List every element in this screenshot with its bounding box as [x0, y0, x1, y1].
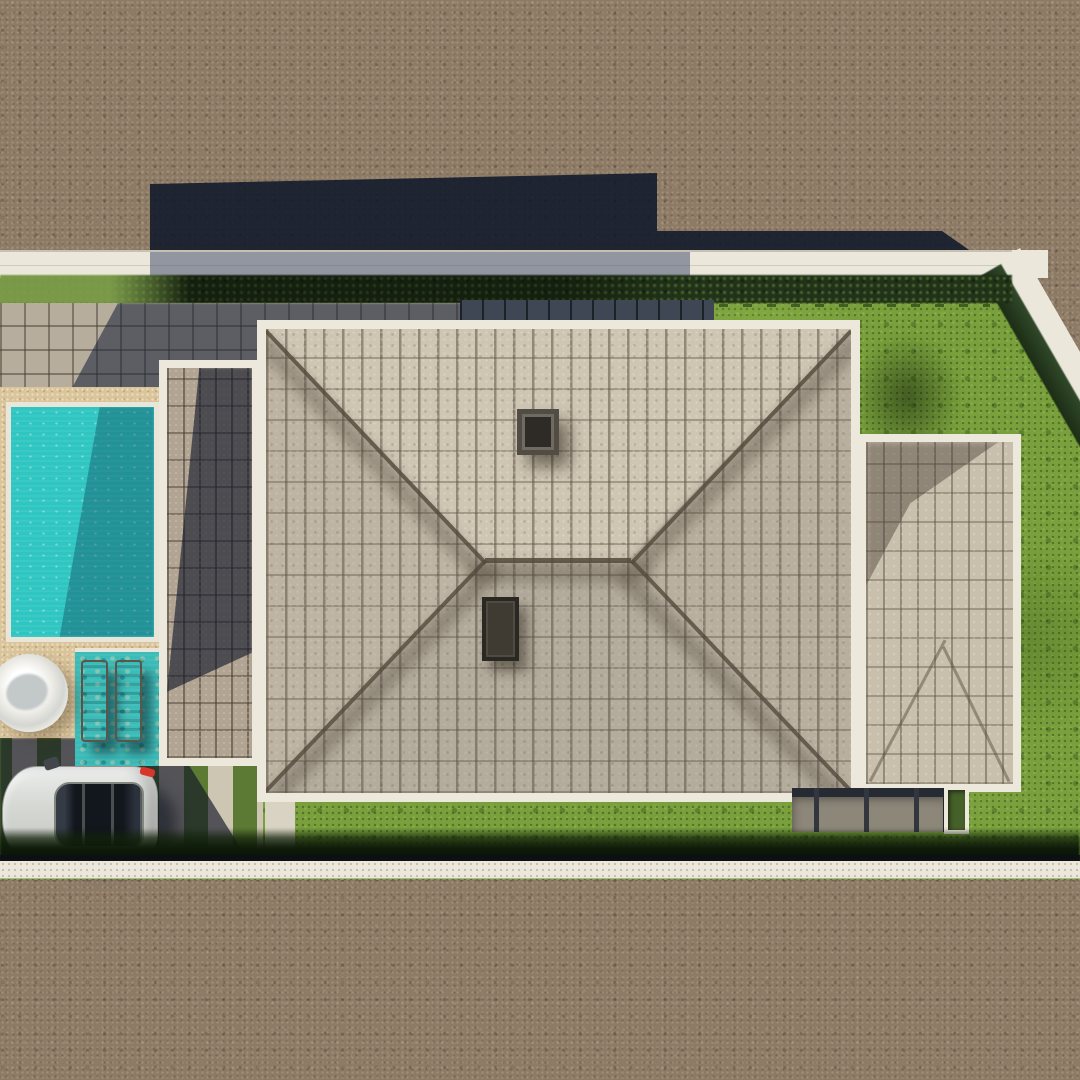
front-sidewalk	[0, 250, 1038, 278]
ridge-line	[485, 558, 631, 563]
carport-strip-roof	[159, 360, 260, 766]
chimney	[517, 409, 559, 455]
terrace-post	[814, 788, 819, 832]
terrace-post	[864, 788, 869, 832]
sun-lounger	[115, 660, 142, 742]
roof-vent	[482, 597, 519, 661]
sun-lounger	[81, 660, 108, 742]
chimney-flue	[525, 417, 551, 447]
ridge-shadow-band	[471, 563, 651, 583]
annex-roof	[858, 434, 1021, 792]
planter-box	[944, 786, 969, 834]
rear-sidewalk	[0, 861, 1080, 879]
terrace-post	[914, 788, 919, 832]
hip-line	[942, 646, 1010, 782]
front-hedge	[0, 275, 1012, 303]
site-plan-render	[0, 0, 1080, 1080]
entry-path-pavers	[460, 300, 714, 322]
lawn-seam-dashes	[695, 304, 990, 307]
hip-line	[869, 640, 947, 783]
pool-sun-shelf	[75, 648, 159, 766]
main-hip-roof	[257, 320, 860, 802]
carport-roof-shadow	[167, 368, 252, 758]
swimming-pool	[6, 402, 159, 642]
rear-terrace	[792, 788, 950, 832]
spa-water	[2, 669, 52, 715]
annex-roof-shadow	[866, 442, 1013, 784]
